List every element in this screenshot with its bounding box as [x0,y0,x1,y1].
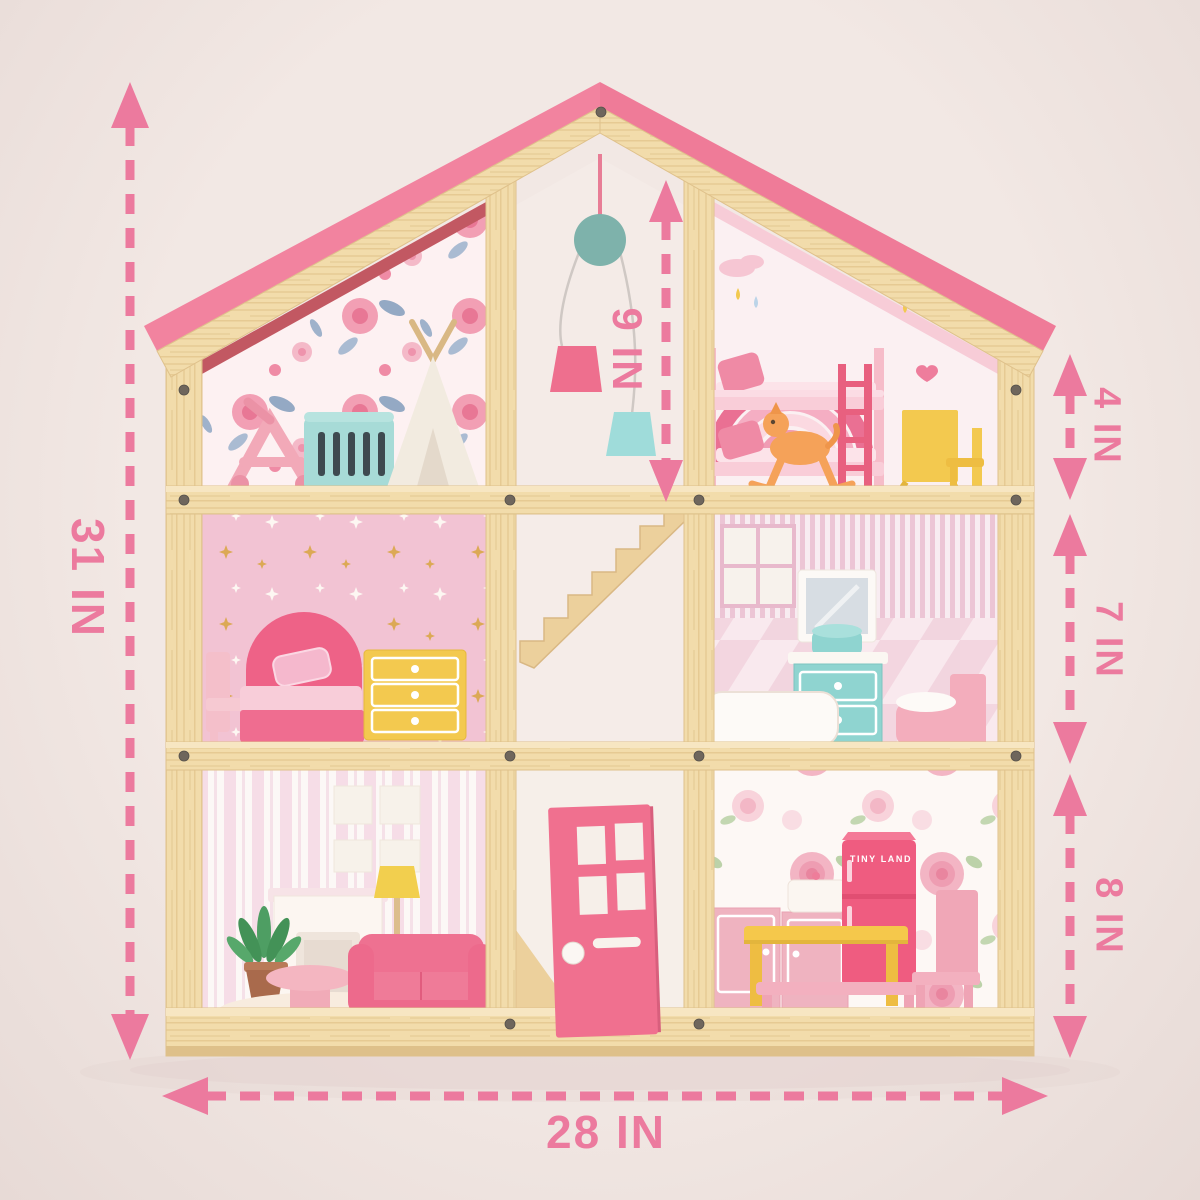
dimension-top-floor-line [1053,354,1087,500]
fridge: TINY LAND [842,832,916,986]
dimension-top-floor-label: 4 IN [1085,387,1128,465]
left-post [166,345,202,1012]
dimension-total-height-line [111,82,149,1060]
room-bathroom [704,514,998,746]
room-bedroom [202,514,486,742]
dimension-bottom-floor-label: 8 IN [1087,877,1130,955]
door-knob [562,942,585,965]
blanket [240,686,362,714]
center-post-left [486,160,516,1012]
room-kitchen: TINY LAND [712,770,998,1021]
dimension-total-width-label: 28 IN [546,1105,666,1159]
front-door [548,804,661,1038]
window-decal [720,524,796,608]
bathtub [704,692,838,746]
dresser [364,650,466,740]
right-post [998,345,1034,1012]
dimension-center-opening-label: 9 IN [603,307,651,392]
center-post-right [684,160,714,1012]
kitchen-sink [788,880,846,912]
product-dimension-diagram: TINY LAND [0,0,1200,1200]
teal-lampshade [606,412,656,456]
pink-lampshade [550,346,602,392]
dimension-middle-floor-label: 7 IN [1087,601,1130,679]
dollhouse-illustration: TINY LAND [0,0,1200,1200]
room-living [202,770,494,1032]
fridge-label: TINY LAND [850,854,912,864]
crib [304,412,394,490]
dimension-bottom-floor-line [1053,774,1087,1058]
mobile-disc [574,214,626,266]
dimension-total-height-label: 31 IN [61,518,115,638]
mail-slot [593,937,641,949]
dimension-middle-floor-line [1053,514,1087,764]
stair-bay-wall [516,514,684,742]
